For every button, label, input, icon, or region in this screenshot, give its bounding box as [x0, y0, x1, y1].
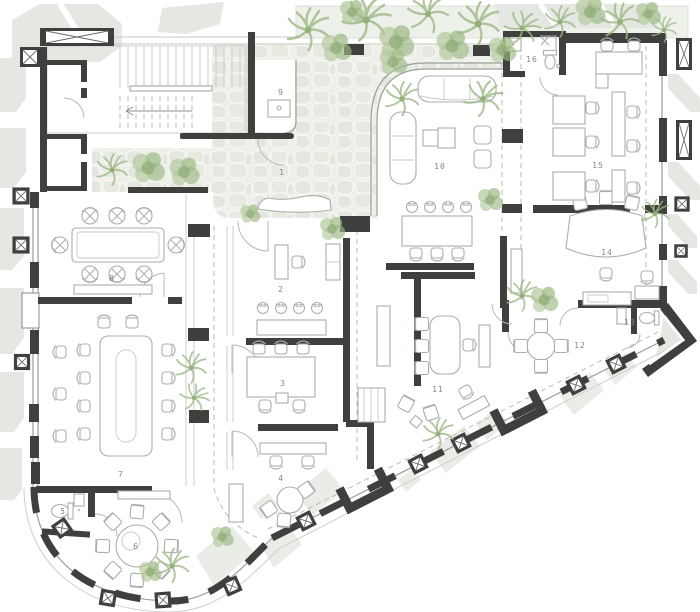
column-icon: [674, 244, 688, 258]
sofa: [390, 112, 416, 184]
room-label-1: 1: [279, 168, 285, 177]
credenza: [74, 285, 152, 294]
roof-shadow-top: [158, 2, 224, 34]
room-label-15: 15: [592, 161, 604, 170]
shelving: [358, 388, 385, 422]
credenza: [583, 292, 631, 305]
plant-icon: [478, 188, 503, 211]
desk-cluster: [553, 92, 640, 156]
room-label-10: 10: [434, 162, 446, 171]
room-label-8: 8: [109, 274, 115, 283]
bench: [118, 491, 170, 499]
armchair: [474, 126, 491, 144]
counter: [257, 320, 326, 335]
plant-icon: [576, 0, 606, 25]
long-table: [402, 216, 472, 246]
room-7-furniture: [53, 315, 175, 456]
shelf: [377, 306, 390, 366]
desk: [260, 443, 326, 454]
room-label-2: 2: [278, 285, 284, 294]
room-label-5: 5: [60, 507, 66, 516]
round-table: [527, 332, 555, 360]
plant-icon: [340, 0, 365, 23]
toilet: [640, 313, 655, 324]
bench: [229, 484, 243, 522]
room-6-furniture: [96, 491, 178, 587]
room-label-3: 3: [280, 379, 286, 388]
coffee-table: [423, 130, 438, 146]
meeting-table: [247, 357, 315, 397]
plant-icon: [170, 158, 200, 186]
room-label-9: 9: [278, 88, 284, 97]
plant-icon: [240, 204, 260, 222]
room-11-furniture: [358, 306, 490, 428]
room-label-13: 13: [624, 318, 636, 327]
room-2-furniture: [257, 244, 340, 335]
reception-bench: [258, 196, 331, 213]
desk: [596, 52, 642, 74]
sink: [268, 100, 290, 117]
plant-icon: [211, 526, 234, 547]
room-15-furniture: [553, 38, 642, 202]
room-label-12: 12: [574, 341, 586, 350]
plant-icon: [139, 561, 162, 582]
floor-plan-canvas: 1 2 3 4 5 6 7 8 9 10 11 12 13 14 15 16: [0, 0, 700, 612]
cabinet: [479, 325, 490, 367]
room-12-furniture: [514, 319, 568, 373]
long-table: [100, 336, 152, 456]
column-icon: [674, 196, 689, 211]
toilet: [545, 55, 555, 69]
side-table: [410, 415, 423, 428]
floor-plan-drawing: 1 2 3 4 5 6 7 8 9 10 11 12 13 14 15 16: [0, 0, 700, 612]
plant-icon: [176, 352, 207, 384]
plant-icon: [385, 81, 419, 116]
plant-icon: [531, 287, 559, 312]
window-box: [22, 293, 39, 328]
room-3-furniture: [247, 341, 315, 413]
plant-icon: [636, 2, 661, 25]
table: [430, 316, 460, 374]
room-label-11: 11: [432, 385, 444, 394]
armchair: [474, 150, 491, 168]
plant-icon: [380, 49, 408, 74]
desk: [635, 286, 659, 299]
desk: [275, 245, 288, 279]
plant-icon: [322, 34, 352, 62]
plant-icon: [436, 30, 469, 60]
stair-handrail: [130, 86, 212, 91]
room-label-14: 14: [601, 248, 613, 257]
room-9-fixtures: [268, 100, 290, 117]
meeting-table: [72, 228, 164, 262]
plant-icon: [132, 152, 165, 182]
room-label-16: 16: [526, 55, 538, 64]
coffee-table: [438, 128, 455, 148]
room-label-4: 4: [278, 474, 284, 483]
plant-icon: [489, 37, 517, 62]
room-8-furniture: [52, 208, 185, 295]
room-label-7: 7: [118, 470, 124, 479]
room-5-fixtures: [52, 494, 85, 519]
room-label-6: 6: [133, 542, 139, 551]
plant-icon: [320, 217, 345, 240]
shower: [540, 36, 556, 52]
